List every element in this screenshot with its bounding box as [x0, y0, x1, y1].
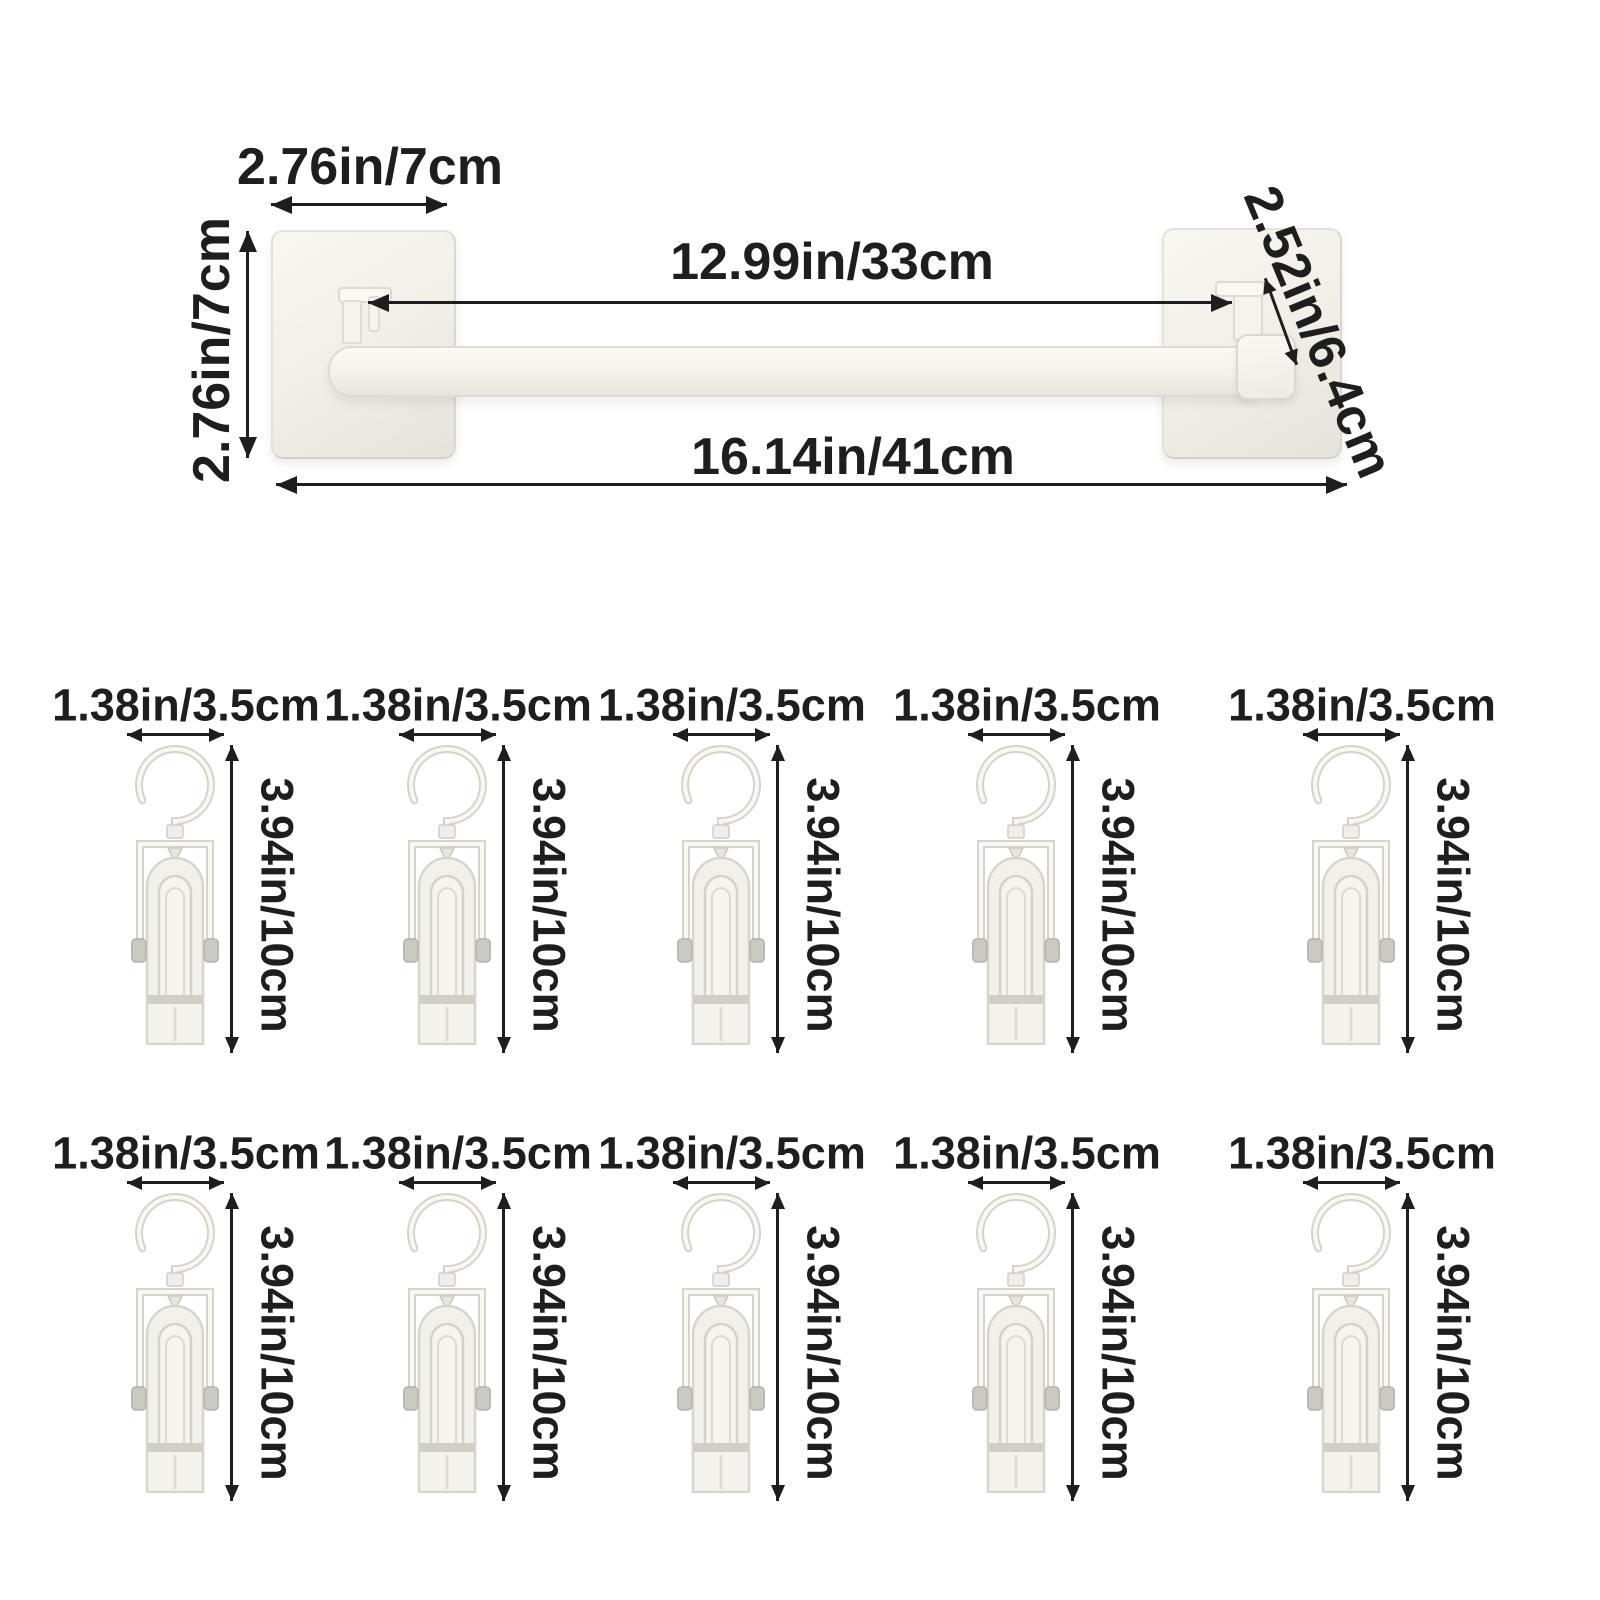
clip-width-arrow: [399, 733, 496, 736]
clip-width-label: 1.38in/3.5cm: [52, 683, 320, 728]
clip-cell: 1.38in/3.5cm 3.94in/10cm: [610, 683, 910, 1103]
clip-cell: 1.38in/3.5cm 3.94in/10cm: [64, 1131, 364, 1551]
clip-width-arrow: [673, 1181, 770, 1184]
clip-height-label: 3.94in/10cm: [801, 1225, 846, 1480]
clip-width-arrow: [127, 1181, 224, 1184]
clip-width-arrow: [127, 733, 224, 736]
clip-width-arrow: [1303, 1181, 1400, 1184]
clip-cell: 1.38in/3.5cm 3.94in/10cm: [336, 683, 636, 1103]
clip-height-arrow: [776, 745, 779, 1053]
clip-hanger-graphic: [677, 1193, 765, 1493]
clip-hanger-graphic: [972, 745, 1060, 1045]
plate-height-arrow: [246, 231, 249, 458]
clip-hanger-graphic: [1307, 1193, 1395, 1493]
left-mount-plate: [271, 230, 456, 459]
clip-cell: 1.38in/3.5cm 3.94in/10cm: [905, 683, 1205, 1103]
clip-width-label: 1.38in/3.5cm: [1228, 683, 1496, 728]
clip-cell: 1.38in/3.5cm 3.94in/10cm: [64, 683, 364, 1103]
clip-width-label: 1.38in/3.5cm: [324, 1131, 592, 1176]
clip-cell: 1.38in/3.5cm 3.94in/10cm: [610, 1131, 910, 1551]
clip-height-arrow: [776, 1193, 779, 1501]
clip-height-arrow: [1071, 745, 1074, 1053]
clip-height-label: 3.94in/10cm: [1431, 1225, 1476, 1480]
clip-cell: 1.38in/3.5cm 3.94in/10cm: [1240, 1131, 1540, 1551]
clip-hanger-graphic: [131, 1193, 219, 1493]
total-span-label: 16.14in/41cm: [691, 431, 1015, 483]
clip-width-arrow: [673, 733, 770, 736]
clip-height-arrow: [502, 745, 505, 1053]
clip-width-arrow: [1303, 733, 1400, 736]
clip-width-arrow: [968, 1181, 1065, 1184]
clip-height-label: 3.94in/10cm: [1096, 777, 1141, 1032]
clip-hanger-graphic: [1307, 745, 1395, 1045]
clip-hanger-graphic: [403, 1193, 491, 1493]
clip-width-label: 1.38in/3.5cm: [598, 1131, 866, 1176]
clip-hanger-graphic: [972, 1193, 1060, 1493]
clip-width-label: 1.38in/3.5cm: [324, 683, 592, 728]
clip-height-arrow: [1406, 745, 1409, 1053]
clip-width-arrow: [968, 733, 1065, 736]
clip-hanger-graphic: [403, 745, 491, 1045]
clip-height-label: 3.94in/10cm: [801, 777, 846, 1032]
plate-width-label: 2.76in/7cm: [237, 141, 503, 193]
clip-height-label: 3.94in/10cm: [1096, 1225, 1141, 1480]
clip-hanger-graphic: [131, 745, 219, 1045]
clip-cell: 1.38in/3.5cm 3.94in/10cm: [1240, 683, 1540, 1103]
clip-width-label: 1.38in/3.5cm: [1228, 1131, 1496, 1176]
clip-height-arrow: [502, 1193, 505, 1501]
clip-width-label: 1.38in/3.5cm: [598, 683, 866, 728]
clip-width-label: 1.38in/3.5cm: [52, 1131, 320, 1176]
clip-height-label: 3.94in/10cm: [1431, 777, 1476, 1032]
clip-hanger-graphic: [677, 745, 765, 1045]
clip-height-label: 3.94in/10cm: [527, 1225, 572, 1480]
clip-width-label: 1.38in/3.5cm: [893, 1131, 1161, 1176]
inner-span-arrow: [368, 301, 1232, 304]
clip-height-label: 3.94in/10cm: [255, 1225, 300, 1480]
inner-span-label: 12.99in/33cm: [670, 236, 994, 288]
clip-width-label: 1.38in/3.5cm: [893, 683, 1161, 728]
clip-cell: 1.38in/3.5cm 3.94in/10cm: [336, 1131, 636, 1551]
left-hook-stem: [342, 300, 362, 344]
clip-height-arrow: [230, 1193, 233, 1501]
clip-height-arrow: [230, 745, 233, 1053]
clip-height-label: 3.94in/10cm: [527, 777, 572, 1032]
clip-height-arrow: [1071, 1193, 1074, 1501]
clip-cell: 1.38in/3.5cm 3.94in/10cm: [905, 1131, 1205, 1551]
rail-bar: [328, 346, 1264, 397]
product-dimensions-diagram: 2.76in/7cm 2.76in/7cm 12.99in/33cm 16.14…: [0, 0, 1600, 1600]
clip-height-label: 3.94in/10cm: [255, 777, 300, 1032]
clip-width-arrow: [399, 1181, 496, 1184]
plate-width-arrow: [271, 203, 447, 206]
plate-height-label: 2.76in/7cm: [186, 217, 238, 483]
clip-height-arrow: [1406, 1193, 1409, 1501]
